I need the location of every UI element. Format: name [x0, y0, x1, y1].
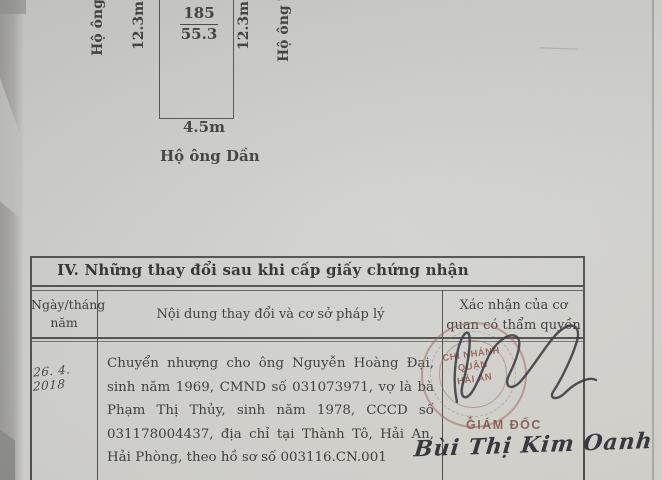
table-border-top [30, 256, 584, 258]
faint-crease-line [540, 47, 578, 49]
neighbor-label-bottom: Hộ ông Dần [160, 147, 260, 165]
neighbor-label-right-wrap: Hộ ông T [276, 0, 296, 62]
scanner-corner-top-left [0, 0, 26, 14]
column-header-content: Nội dung thay đổi và cơ sở pháp lý [99, 305, 442, 325]
section-title: IV. Những thay đổi sau khi cấp giấy chứn… [32, 261, 582, 279]
table-title-separator [30, 285, 584, 287]
table-title-separator-2 [30, 290, 584, 291]
handwritten-entry-date: 26. 4. 2018 [33, 360, 95, 394]
dimension-left: 12.3m [131, 0, 147, 50]
scanned-land-certificate-page: 185 55.3 12.3m 12.3m 4.5m Hộ ông Đ Hộ ôn… [0, 0, 662, 480]
scanner-edge-left [0, 0, 24, 480]
plot-number-area-label: 185 55.3 [176, 4, 222, 44]
transfer-record-text: Chuyển nhượng cho ông Nguyễn Hoàng Đại, … [107, 352, 434, 470]
neighbor-label-left: Hộ ông Đ [90, 0, 106, 56]
plot-area: 55.3 [181, 25, 218, 43]
column-header-date: Ngày/tháng năm [31, 296, 97, 332]
signer-title: GIÁM ĐỐC [448, 418, 560, 432]
dimension-right: 12.3m [236, 0, 252, 50]
neighbor-label-right: Hộ ông T [276, 0, 292, 62]
neighbor-label-left-wrap: Hộ ông Đ [90, 0, 110, 56]
dimension-bottom: 4.5m [183, 118, 225, 136]
plot-number: 185 [180, 4, 217, 25]
